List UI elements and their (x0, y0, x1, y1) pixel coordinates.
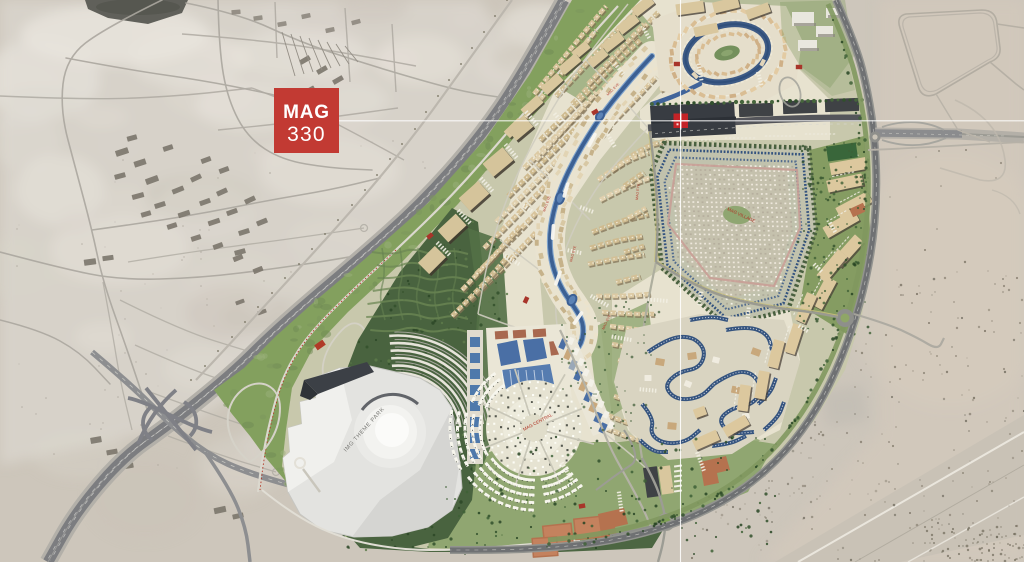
svg-text:330: 330 (287, 123, 326, 146)
svg-text:MAG: MAG (283, 102, 330, 123)
